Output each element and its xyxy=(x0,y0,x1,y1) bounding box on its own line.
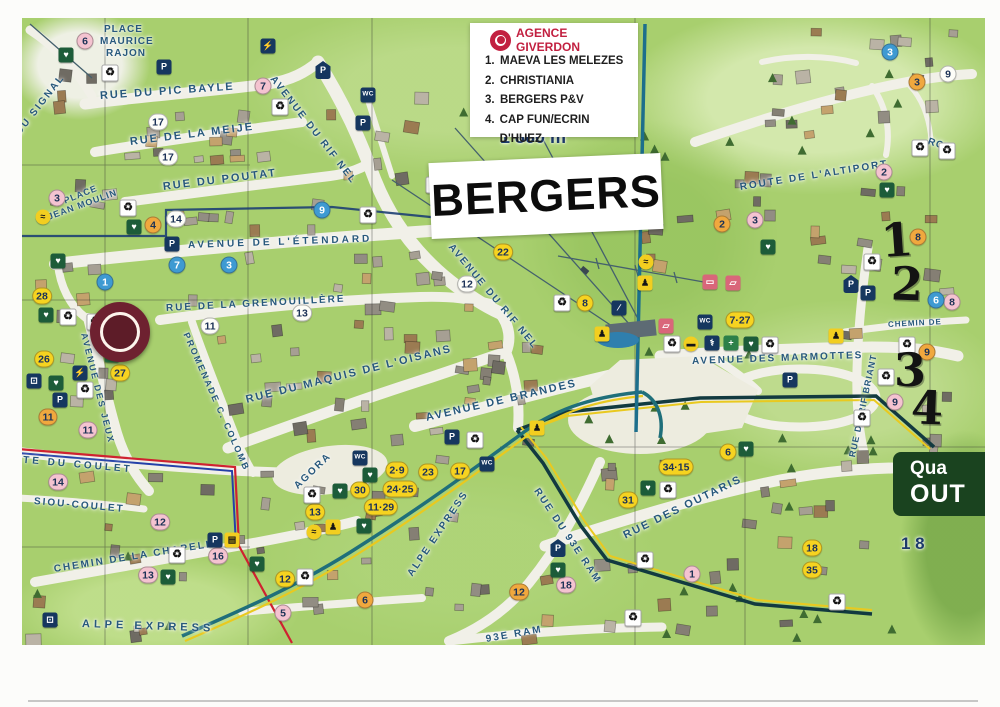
map-number-badge: 30 xyxy=(350,482,370,499)
doctor-icon: ⚕ xyxy=(705,336,720,351)
legend-panel: AGENCE GIVERDON 1.MAEVA LES MELEZES2.CHR… xyxy=(470,23,638,137)
parking-icon: P xyxy=(208,533,223,548)
recycle-icon: ♻ xyxy=(297,569,314,586)
map-number-badge: 35 xyxy=(802,562,822,579)
map-number-badge: 16 xyxy=(208,548,228,565)
map-number-badge: 6 xyxy=(720,444,737,461)
map-number-badge: 2 xyxy=(876,164,893,181)
recycle-icon: ♻ xyxy=(854,410,871,427)
agency-name: AGENCE GIVERDON xyxy=(516,26,632,54)
gondola-icon: ⊡ xyxy=(27,374,42,389)
heart-icon: ♥ xyxy=(59,48,74,63)
map-number-badge: 3 xyxy=(49,190,66,207)
map-number-badge: 17 xyxy=(450,463,470,480)
map-number-badge: 17 xyxy=(148,114,168,131)
map-number-badge: 11 xyxy=(38,409,57,426)
wc-icon: WC xyxy=(698,315,713,330)
map-number-badge: 27 xyxy=(110,365,130,382)
map-number-badge: 18 xyxy=(802,540,822,557)
map-number-badge: 3 xyxy=(221,257,238,274)
map-number-badge: 7 xyxy=(255,78,272,95)
recycle-icon: ♻ xyxy=(664,336,681,353)
shuttle-icon: ▬ xyxy=(684,337,699,352)
map-number-badge: 28 xyxy=(32,288,52,305)
map-number-badge: 11·29 xyxy=(364,499,398,516)
map-number-badge: 22 xyxy=(493,244,513,261)
escalator-icon: ∕ xyxy=(612,301,627,316)
map-number-badge: 23 xyxy=(418,464,438,481)
legend-item: 1.MAEVA LES MELEZES xyxy=(478,52,632,72)
heart-icon: ♥ xyxy=(250,557,265,572)
recycle-icon: ♻ xyxy=(102,65,119,82)
parking-icon: P xyxy=(445,430,460,445)
recycle-icon: ♻ xyxy=(554,295,571,312)
map-number-badge: 34·15 xyxy=(659,459,694,476)
map-number-badge: 5 xyxy=(275,605,292,622)
map-number-badge: 9 xyxy=(314,202,331,219)
quarter-sign-line2: OUT xyxy=(910,480,997,509)
recycle-icon: ♻ xyxy=(625,610,642,627)
wc-icon: WC xyxy=(353,451,368,466)
recycle-icon: ♻ xyxy=(169,547,186,564)
recycle-icon: ♻ xyxy=(60,309,77,326)
ski-activity-icon: ♟ xyxy=(829,329,844,344)
map-number-badge: 31 xyxy=(618,492,638,509)
map-number-badge: 1 xyxy=(684,566,701,583)
parking-icon: P xyxy=(53,393,68,408)
map-number-badge: 26 xyxy=(34,351,54,368)
recycle-icon: ♻ xyxy=(762,337,779,354)
recycle-icon: ♻ xyxy=(120,200,137,217)
map-number-badge: 9 xyxy=(940,66,957,83)
agency-logo-icon xyxy=(490,30,511,51)
scan-edge-line xyxy=(28,700,978,702)
ticket-icon: ▱ xyxy=(659,319,674,334)
map-number-badge: 17 xyxy=(158,149,178,166)
wc-icon: WC xyxy=(480,457,495,472)
map-number-badge: 12 xyxy=(275,571,295,588)
recycle-icon: ♻ xyxy=(467,432,484,449)
map-number-badge: 6 xyxy=(928,292,945,309)
legend-header: AGENCE GIVERDON xyxy=(490,28,632,52)
map-number-badge: 11 xyxy=(200,318,219,335)
map-number-badge: 2 xyxy=(714,216,731,233)
map-number-badge: 3 xyxy=(882,44,899,61)
map-number-badge: 13 xyxy=(292,305,312,322)
recycle-icon: ♻ xyxy=(77,382,94,399)
map-number-badge: 11 xyxy=(78,422,97,439)
heart-icon: ♥ xyxy=(363,468,378,483)
map-number-badge: 6 xyxy=(357,592,374,609)
map-number-badge: 6 xyxy=(77,33,94,50)
altitude-label: 1 8 xyxy=(901,534,925,554)
street-label: RAJON xyxy=(106,48,146,59)
ski-activity-icon: ♟ xyxy=(638,276,653,291)
recycle-icon: ♻ xyxy=(272,99,289,116)
map-number-badge: 14 xyxy=(166,211,186,228)
legend-item: 3.BERGERS P&V xyxy=(478,91,632,111)
ev-plug-icon: ⚡ xyxy=(261,39,276,54)
map-canvas: PLACEMAURICERAJONRUE DU PIC BAYLERUE DE … xyxy=(0,0,1000,707)
map-number-badge: 24·25 xyxy=(383,481,418,498)
map-number-badge: 8 xyxy=(944,294,961,311)
heart-icon: ♥ xyxy=(880,183,895,198)
sledge-trail-icon: ≈ xyxy=(36,210,51,225)
sledge-trail-icon: ≈ xyxy=(307,525,322,540)
agency-location-target-icon xyxy=(90,302,150,362)
map-number-badge: 4 xyxy=(145,217,162,234)
scan-margin-top xyxy=(0,0,1000,18)
parking-icon: P xyxy=(157,60,172,75)
recycle-icon: ♻ xyxy=(637,552,654,569)
bar-icon: ▭ xyxy=(703,275,718,290)
map-number-badge: 18 xyxy=(556,577,576,594)
handwritten-number: 4 xyxy=(910,384,944,431)
scan-margin-bottom xyxy=(0,645,1000,707)
heart-icon: ♥ xyxy=(641,481,656,496)
parking-icon: P xyxy=(165,237,180,252)
parking-icon: P xyxy=(356,116,371,131)
legend-items: 1.MAEVA LES MELEZES2.CHRISTIANIA3.BERGER… xyxy=(478,52,632,150)
map-number-badge: 12 xyxy=(457,276,477,293)
heart-icon: ♥ xyxy=(39,308,54,323)
wc-icon: WC xyxy=(361,88,376,103)
scan-margin-right xyxy=(985,0,1000,707)
scanned-resort-map-page: PLACEMAURICERAJONRUE DU PIC BAYLERUE DE … xyxy=(0,0,1000,707)
heart-icon: ♥ xyxy=(333,484,348,499)
recycle-icon: ♻ xyxy=(360,207,377,224)
recycle-icon: ♻ xyxy=(878,369,895,386)
legend-item: 4.CAP FUN/ECRIN D'HUEZ xyxy=(478,111,632,150)
heart-icon: ♥ xyxy=(551,563,566,578)
map-number-badge: 12 xyxy=(509,584,529,601)
recycle-icon: ♻ xyxy=(939,143,956,160)
first-aid-icon: + xyxy=(724,336,739,351)
heart-icon: ♥ xyxy=(761,240,776,255)
heart-icon: ♥ xyxy=(51,254,66,269)
recycle-icon: ♻ xyxy=(829,594,846,611)
heart-icon: ♥ xyxy=(739,442,754,457)
recycle-icon: ♻ xyxy=(660,482,677,499)
map-number-badge: 2·9 xyxy=(385,462,408,479)
heart-icon: ♥ xyxy=(357,519,372,534)
quarter-sign-line1: Qua xyxy=(910,458,997,480)
district-title-banner: BERGERS xyxy=(428,153,663,239)
street-label: MAURICE xyxy=(100,36,154,47)
ticket-icon: ▱ xyxy=(726,276,741,291)
heart-icon: ♥ xyxy=(127,220,142,235)
heart-icon: ♥ xyxy=(49,376,64,391)
street-label: PLACE xyxy=(104,24,143,35)
handwritten-number: 2 xyxy=(890,260,924,307)
ev-plug-icon: ⚡ xyxy=(73,366,88,381)
legend-item: 2.CHRISTIANIA xyxy=(478,72,632,92)
recycle-icon: ♻ xyxy=(864,254,881,271)
map-number-badge: 8 xyxy=(577,295,594,312)
recycle-icon: ♻ xyxy=(304,487,321,504)
map-number-badge: 3 xyxy=(747,212,764,229)
map-number-badge: 14 xyxy=(48,474,68,491)
map-number-badge: 7 xyxy=(169,257,186,274)
shopping-icon: ▤ xyxy=(225,533,240,548)
quarter-sign: Qua OUT xyxy=(893,452,997,516)
gondola-icon: ⊡ xyxy=(43,613,58,628)
sledge-trail-icon: ≈ xyxy=(639,255,654,270)
map-number-badge: 13 xyxy=(305,504,325,521)
heart-icon: ♥ xyxy=(744,337,759,352)
map-number-badge: 1 xyxy=(97,274,114,291)
map-number-badge: 12 xyxy=(150,514,170,531)
heart-icon: ♥ xyxy=(161,570,176,585)
recycle-icon: ♻ xyxy=(912,140,929,157)
map-number-badge: 3 xyxy=(909,74,926,91)
scan-margin-left xyxy=(0,0,22,707)
ski-activity-icon: ♟ xyxy=(326,520,341,535)
ski-activity-icon: ♟ xyxy=(530,421,545,436)
map-number-badge: 7·27 xyxy=(725,312,754,329)
parking-icon: P xyxy=(783,373,798,388)
parking-icon: P xyxy=(861,286,876,301)
ski-activity-icon: ♟ xyxy=(595,327,610,342)
map-number-badge: 13 xyxy=(138,567,158,584)
